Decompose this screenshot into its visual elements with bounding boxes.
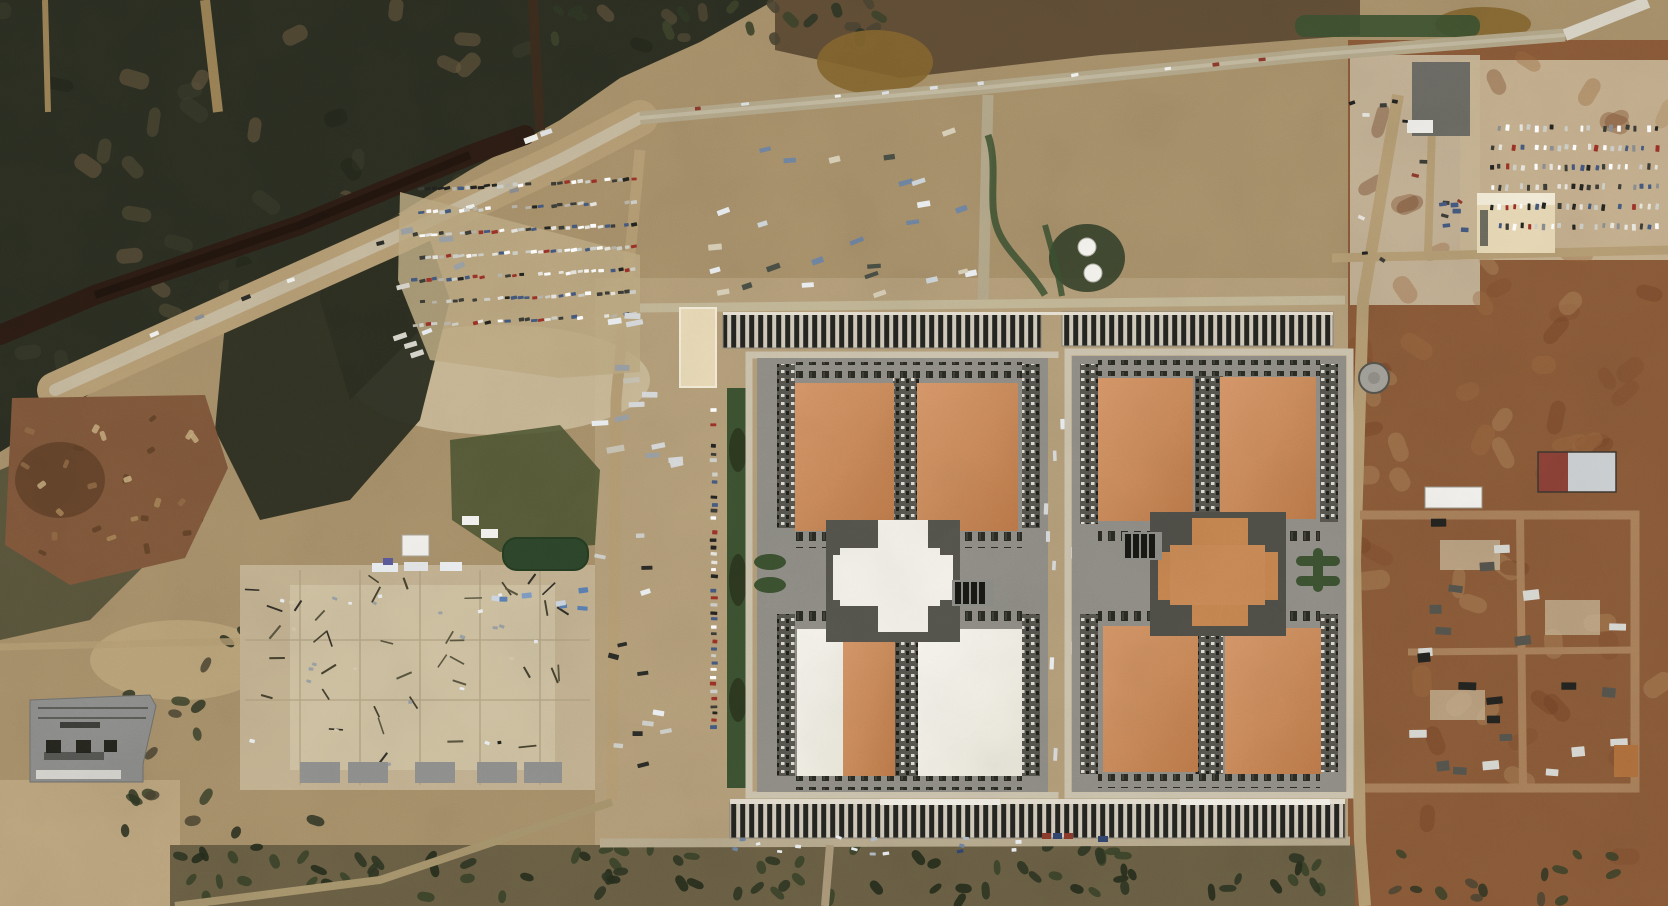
photo-grain-overlay xyxy=(0,0,1668,906)
satellite-scene xyxy=(0,0,1668,906)
satellite-image: Satellite aerial view of a large data ce… xyxy=(0,0,1668,906)
